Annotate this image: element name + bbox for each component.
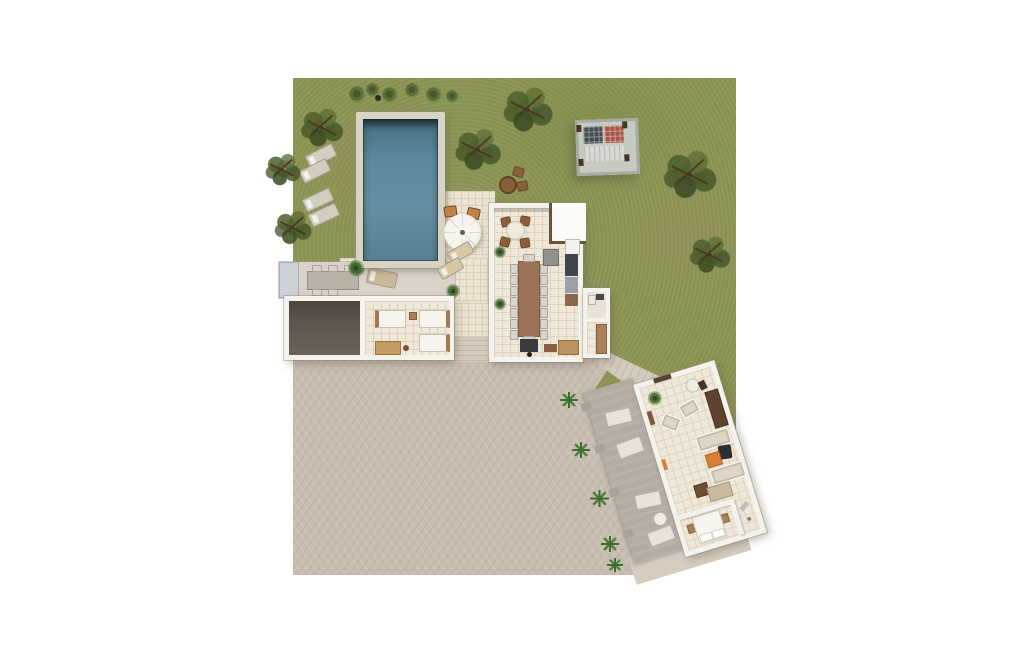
terrace-bench <box>366 267 399 289</box>
agave-plant <box>607 558 623 572</box>
fire-pit <box>375 95 381 101</box>
table-chair <box>540 330 548 340</box>
garden-table <box>499 176 517 194</box>
kitchen-island <box>543 249 559 266</box>
single-bed <box>375 310 406 328</box>
single-bed <box>419 334 450 352</box>
table-chair <box>540 297 548 307</box>
dining-chair <box>519 237 530 248</box>
solar-panel-red <box>604 125 624 143</box>
sink <box>596 294 604 300</box>
pergola-post <box>576 125 581 132</box>
table-chair <box>523 254 535 262</box>
table-chair <box>510 330 518 340</box>
solar-panel-grey <box>583 126 603 144</box>
patio-plant <box>348 260 364 276</box>
table-chair <box>540 319 548 329</box>
kitchen-counter-wood <box>565 294 578 306</box>
parasol-pole <box>460 230 465 235</box>
bush <box>426 87 442 103</box>
pool <box>356 112 445 268</box>
sideboard <box>558 340 579 355</box>
garage-room <box>289 301 360 355</box>
floor-vase <box>403 345 409 351</box>
bush <box>405 83 420 98</box>
stove-knob <box>527 352 532 357</box>
table-chair <box>510 297 518 307</box>
table-chair <box>510 308 518 318</box>
toilet <box>588 295 596 305</box>
wooden-chest <box>375 341 401 355</box>
fridge <box>565 239 580 255</box>
site-plan <box>0 0 1024 652</box>
solar-pergola <box>575 118 640 176</box>
outdoor-chair <box>312 289 322 296</box>
deck-lounger <box>615 436 645 460</box>
outdoor-shower-pad <box>279 262 299 298</box>
garden-chair <box>516 180 529 192</box>
outdoor-chair <box>312 265 322 272</box>
indoor-plant <box>494 246 506 258</box>
kitchen-counter-dark <box>565 254 578 276</box>
agave-plant <box>601 536 619 552</box>
tall-cabinet <box>596 324 607 354</box>
patio-steps <box>452 336 488 362</box>
deck-lounger <box>634 490 663 510</box>
annex-storage <box>587 322 606 354</box>
table-chair <box>540 275 548 285</box>
bedroom-room <box>365 301 449 355</box>
nightstand <box>409 312 417 320</box>
indoor-plant <box>494 298 506 310</box>
annex <box>583 288 610 358</box>
single-bed <box>419 310 450 328</box>
agave-plant <box>560 392 578 408</box>
round-table <box>506 221 525 240</box>
outdoor-chair <box>328 289 338 296</box>
bush <box>349 86 366 103</box>
stove <box>520 339 538 352</box>
pool-water <box>363 119 438 261</box>
bush <box>446 90 459 103</box>
pergola-post <box>624 154 629 161</box>
deck-pad <box>622 529 634 540</box>
deck-pad <box>594 443 606 454</box>
table-chair <box>510 319 518 329</box>
olive-tree <box>687 232 733 278</box>
pergola-post <box>622 121 627 128</box>
deck-lounger <box>604 407 633 427</box>
outdoor-chair <box>328 265 338 272</box>
deck-pad <box>608 487 620 498</box>
entry-porch <box>549 203 586 244</box>
agave-plant <box>572 442 590 458</box>
olive-tree <box>272 207 314 249</box>
olive-tree <box>452 124 504 176</box>
pergola-post <box>578 159 583 166</box>
olive-tree <box>298 104 346 152</box>
table-chair <box>510 275 518 285</box>
olive-tree <box>660 145 720 205</box>
deck-pad <box>580 401 592 412</box>
long-dining-table <box>518 261 540 337</box>
bush <box>382 87 398 103</box>
table-chair <box>510 264 518 274</box>
table-chair <box>540 286 548 296</box>
door-mat <box>544 344 557 352</box>
olive-tree <box>500 82 556 138</box>
olive-tree <box>263 150 303 190</box>
deck-lounger <box>646 524 676 547</box>
pergola-floor <box>584 145 624 161</box>
bedroom-wing <box>284 296 454 360</box>
main-house <box>489 203 583 362</box>
kitchen-counter-steel <box>565 277 578 293</box>
table-chair <box>510 286 518 296</box>
agave-plant <box>590 490 609 507</box>
table-chair <box>540 308 548 318</box>
annex-bathroom <box>587 292 606 318</box>
wall-shadow <box>494 208 549 212</box>
